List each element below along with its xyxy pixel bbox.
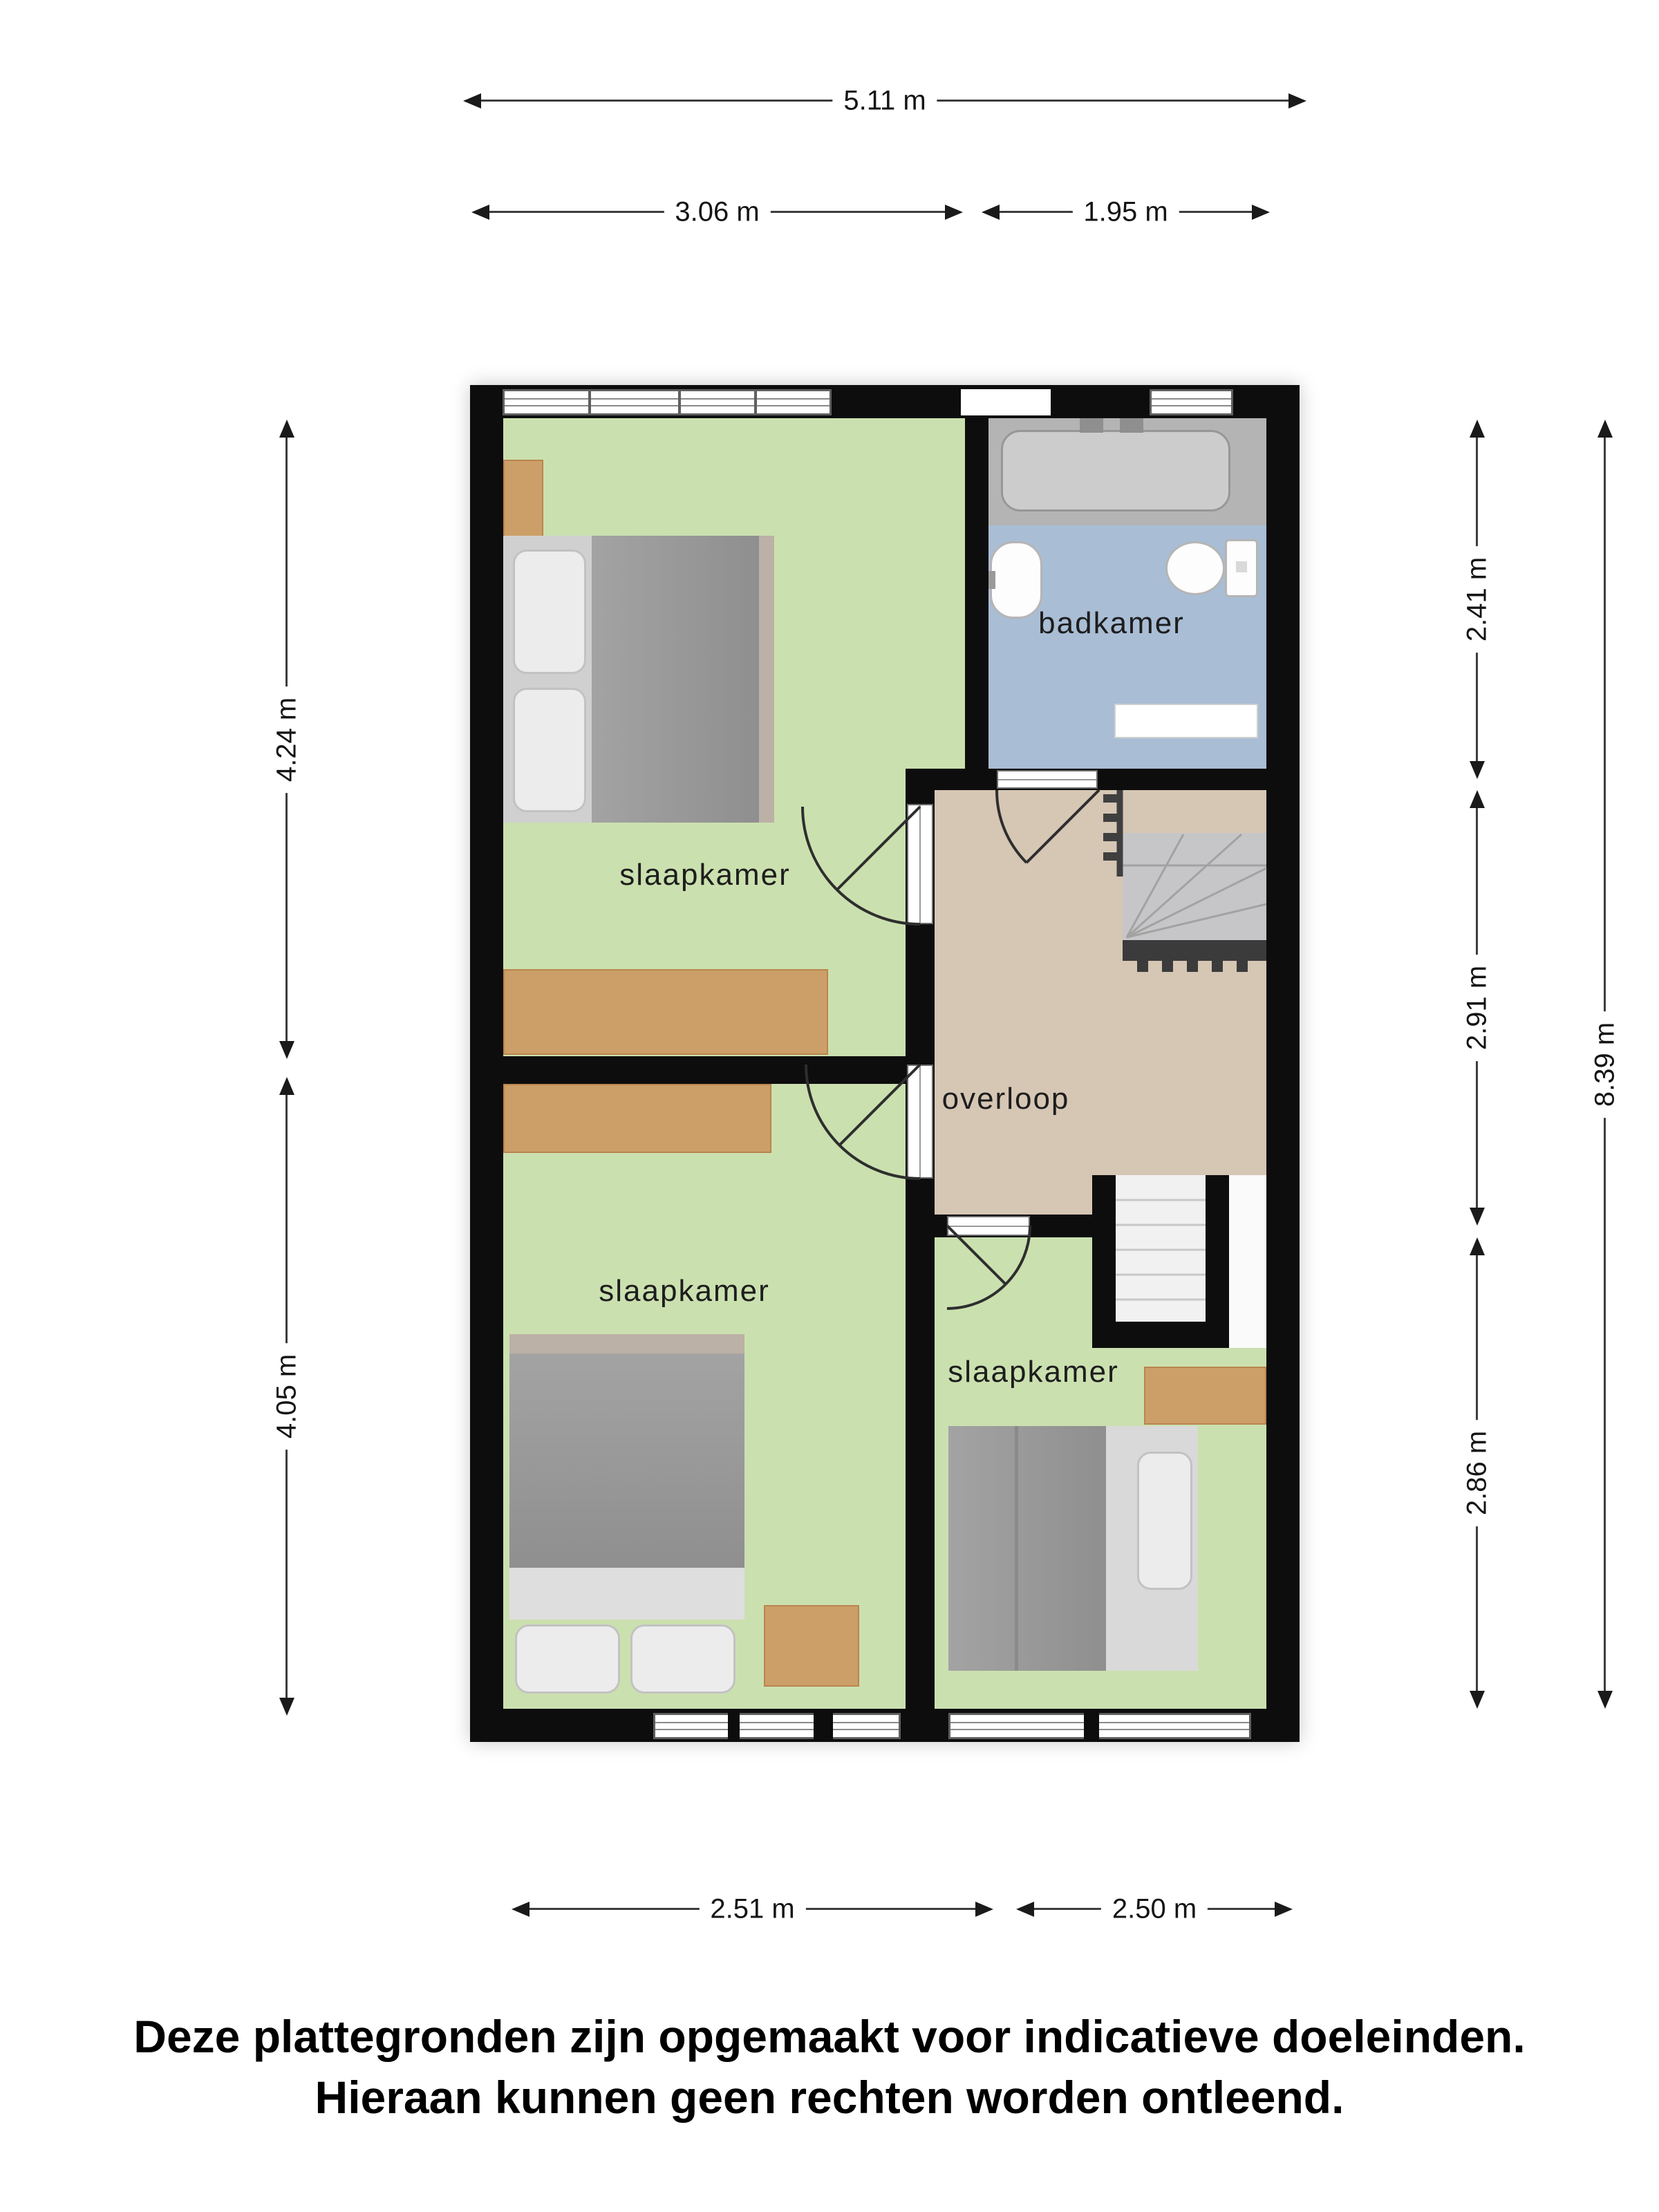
floorplan-page: slaapkamer badkamer overloop slaapkamer …	[0, 0, 1659, 2212]
disclaimer-line-2: Hieraan kunnen geen rechten worden ontle…	[0, 2067, 1659, 2128]
dimension-left-upper: 4.24 m	[273, 420, 301, 1059]
disclaimer-text: Deze plattegronden zijn opgemaakt voor i…	[0, 2006, 1659, 2128]
room-label-badkamer: badkamer	[1038, 606, 1185, 641]
room-label-slaapkamer-1: slaapkamer	[619, 858, 790, 892]
disclaimer-line-1: Deze plattegronden zijn opgemaakt voor i…	[0, 2006, 1659, 2067]
door-leaf-bedroom2	[839, 1065, 920, 1145]
plan-linework	[0, 0, 1659, 2212]
winder-tread-lines	[1123, 834, 1266, 937]
dimension-top-total: 5.11 m	[463, 87, 1306, 115]
dimension-bottom-right: 2.50 m	[1016, 1895, 1293, 1923]
room-label-overloop: overloop	[942, 1082, 1070, 1116]
stringer-comb	[1137, 961, 1248, 972]
door-leaf-bedroom1	[837, 807, 920, 890]
dimension-top-right: 1.95 m	[982, 198, 1270, 226]
room-label-slaapkamer-3: slaapkamer	[948, 1355, 1118, 1389]
dimension-right-middle: 2.91 m	[1463, 790, 1491, 1226]
dimension-top-left: 3.06 m	[471, 198, 963, 226]
door-leaf-bedroom3	[947, 1226, 1006, 1284]
dimension-right-total: 8.39 m	[1591, 420, 1619, 1709]
dimension-right-upper: 2.41 m	[1463, 420, 1491, 779]
room-label-slaapkamer-2: slaapkamer	[599, 1274, 769, 1309]
stair-balustrade	[1103, 790, 1120, 877]
dimension-right-lower: 2.86 m	[1463, 1237, 1491, 1709]
dimension-bottom-left: 2.51 m	[512, 1895, 993, 1923]
lower-tread-lines	[1116, 1200, 1206, 1300]
door-arc-bathroom	[997, 790, 1027, 863]
door-leaf-bathroom	[1027, 790, 1099, 863]
dimension-left-lower: 4.05 m	[273, 1077, 301, 1716]
